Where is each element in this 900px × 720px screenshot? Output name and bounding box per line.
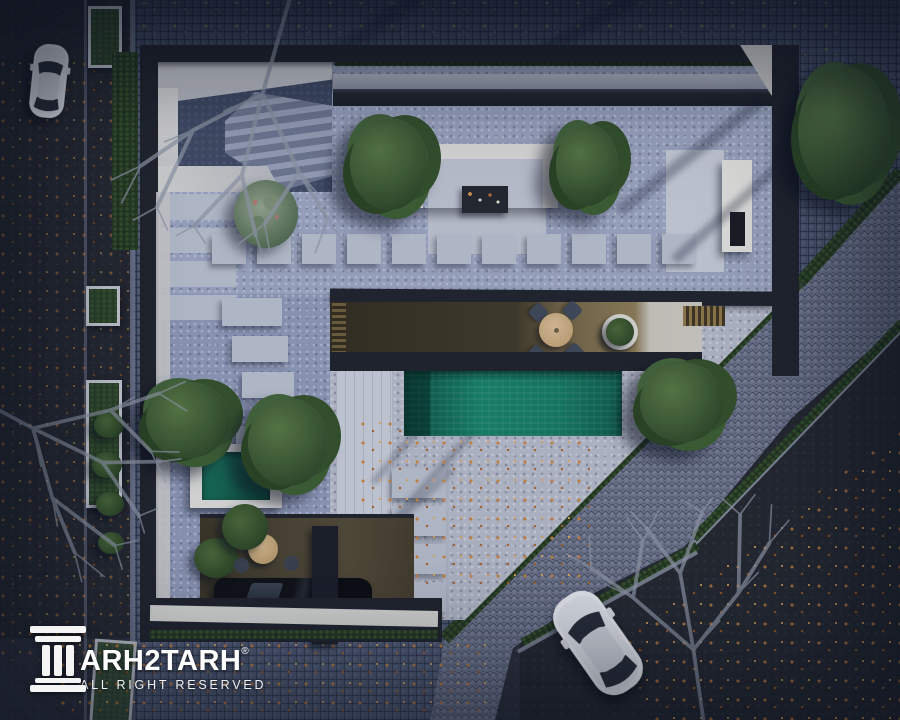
east-wall [772, 45, 799, 376]
courtyard-shrub [222, 504, 268, 550]
pool-house-wall [330, 352, 702, 371]
bistro-stool [234, 558, 249, 573]
bistro-stool [284, 556, 299, 571]
terrace-tree [556, 124, 618, 206]
bare-tree-bottom-right [529, 481, 851, 720]
fire-pit [462, 186, 508, 213]
stepping-stone [617, 234, 651, 264]
poolside-tree [640, 362, 724, 442]
paver-step [232, 336, 288, 362]
brand-label: ARH2TARH [80, 645, 241, 677]
paver-step [222, 298, 282, 326]
stepping-stone [437, 234, 471, 264]
watermark: ARH2TARH® ALL RIGHT RESERVED [30, 626, 266, 692]
stepping-stone [527, 234, 561, 264]
louver-screen-west [332, 302, 346, 354]
street-corner-tree [798, 66, 890, 196]
stepping-stone [392, 234, 426, 264]
column-logo-icon [30, 626, 86, 692]
pergola-louver-grill [683, 306, 725, 326]
kitchen-sink-inset [730, 212, 745, 246]
paver-step [242, 372, 294, 398]
aerial-render-canvas: ARH2TARH® ALL RIGHT RESERVED [0, 0, 900, 720]
brand-name: ARH2TARH® [80, 647, 266, 676]
stepping-stone [482, 234, 516, 264]
dining-terrace-floor [330, 302, 702, 354]
brand-tagline: ALL RIGHT RESERVED [80, 678, 266, 692]
table-centerpiece [554, 328, 559, 333]
west-court-tree [248, 398, 328, 486]
registered-mark: ® [241, 646, 249, 657]
watermark-text: ARH2TARH® ALL RIGHT RESERVED [80, 647, 266, 692]
potted-plant [606, 318, 634, 346]
white-car-top-left [12, 39, 86, 123]
stepping-stone [572, 234, 606, 264]
pool-water-texture [404, 371, 622, 436]
pool-steps [404, 371, 430, 436]
